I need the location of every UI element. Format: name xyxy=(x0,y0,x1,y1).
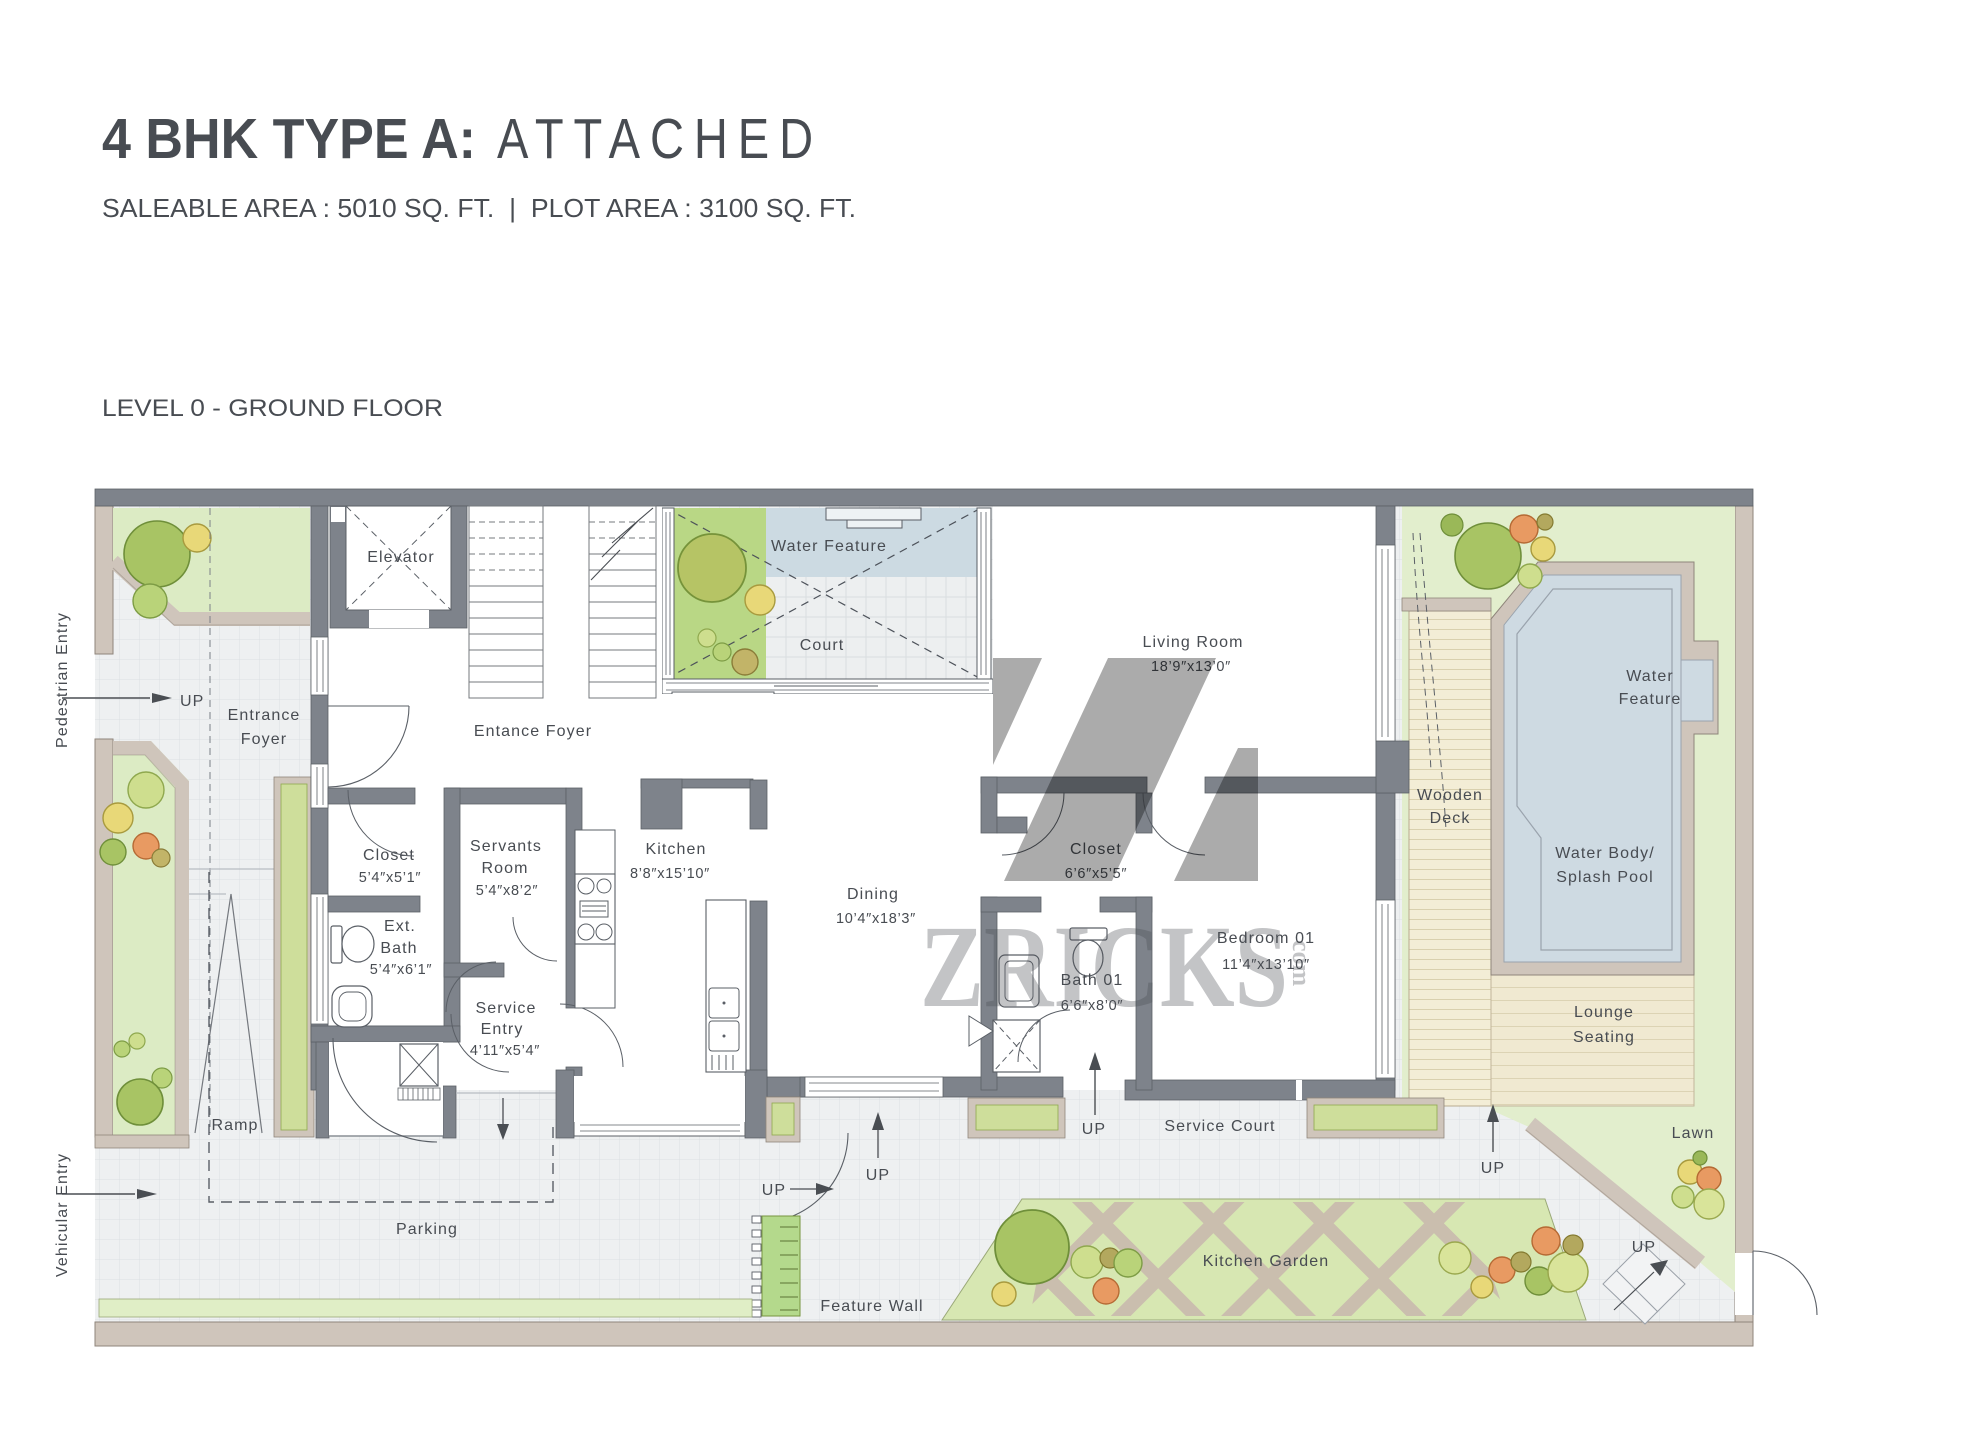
svg-text:Splash Pool: Splash Pool xyxy=(1556,869,1654,886)
svg-text:5’4″x8’2″: 5’4″x8’2″ xyxy=(476,883,539,899)
svg-text:Living Room: Living Room xyxy=(1142,634,1243,651)
svg-text:Court: Court xyxy=(800,637,845,654)
svg-text:4’11″x5’4″: 4’11″x5’4″ xyxy=(470,1043,540,1059)
svg-text:Kitchen: Kitchen xyxy=(645,841,706,858)
svg-text:Entry: Entry xyxy=(481,1021,524,1038)
svg-text:Servants: Servants xyxy=(470,838,542,855)
svg-text:Water Body/: Water Body/ xyxy=(1555,845,1655,862)
svg-text:Deck: Deck xyxy=(1430,810,1471,827)
svg-text:SALEABLE AREA : 5010 SQ. FT.: SALEABLE AREA : 5010 SQ. FT. | PLOT AREA… xyxy=(102,193,856,223)
svg-text:Entance Foyer: Entance Foyer xyxy=(474,723,592,740)
svg-text:Wooden: Wooden xyxy=(1417,787,1483,804)
svg-text:LEVEL 0 - GROUND FLOOR: LEVEL 0 - GROUND FLOOR xyxy=(102,395,443,422)
svg-text:Ramp: Ramp xyxy=(211,1117,258,1134)
svg-text:UP: UP xyxy=(1632,1239,1656,1256)
svg-text:Lounge: Lounge xyxy=(1574,1004,1634,1021)
svg-text:Service: Service xyxy=(475,1000,536,1017)
svg-text:5’4″x6’1″: 5’4″x6’1″ xyxy=(370,962,433,978)
svg-text:Water: Water xyxy=(1626,668,1674,685)
svg-text:Feature: Feature xyxy=(1619,691,1682,708)
svg-text:Ext.: Ext. xyxy=(384,918,416,935)
svg-text:UP: UP xyxy=(1481,1160,1505,1177)
svg-text:Service Court: Service Court xyxy=(1164,1118,1275,1135)
svg-text:5’4″x5’1″: 5’4″x5’1″ xyxy=(359,870,422,886)
svg-text:Kitchen Garden: Kitchen Garden xyxy=(1203,1253,1330,1270)
svg-text:Water Feature: Water Feature xyxy=(771,538,887,555)
svg-text:Lawn: Lawn xyxy=(1672,1125,1715,1142)
svg-text:ATTACHED: ATTACHED xyxy=(497,107,823,171)
svg-text:com: com xyxy=(1287,940,1316,987)
svg-text:Foyer: Foyer xyxy=(241,731,287,748)
svg-text:Vehicular Entry: Vehicular Entry xyxy=(54,1153,71,1277)
svg-text:Room: Room xyxy=(481,860,528,877)
svg-text:10’4″x18’3″: 10’4″x18’3″ xyxy=(836,911,916,927)
svg-text:Parking: Parking xyxy=(396,1221,458,1238)
svg-text:Feature Wall: Feature Wall xyxy=(820,1298,923,1315)
svg-text:UP: UP xyxy=(762,1182,786,1199)
svg-text:UP: UP xyxy=(1082,1121,1106,1138)
svg-text:Bath: Bath xyxy=(380,940,417,957)
svg-text:UP: UP xyxy=(866,1167,890,1184)
svg-text:8’8″x15’10″: 8’8″x15’10″ xyxy=(630,866,710,882)
svg-text:Entrance: Entrance xyxy=(228,707,301,724)
svg-text:UP: UP xyxy=(180,693,204,710)
svg-text:Elevator: Elevator xyxy=(367,549,435,566)
svg-text:Pedestrian Entry: Pedestrian Entry xyxy=(54,612,71,748)
svg-text:Seating: Seating xyxy=(1573,1029,1635,1046)
svg-text:Dining: Dining xyxy=(847,886,899,903)
svg-text:4 BHK TYPE A:: 4 BHK TYPE A: xyxy=(102,107,476,171)
svg-text:ZRICKS: ZRICKS xyxy=(920,901,1288,1032)
